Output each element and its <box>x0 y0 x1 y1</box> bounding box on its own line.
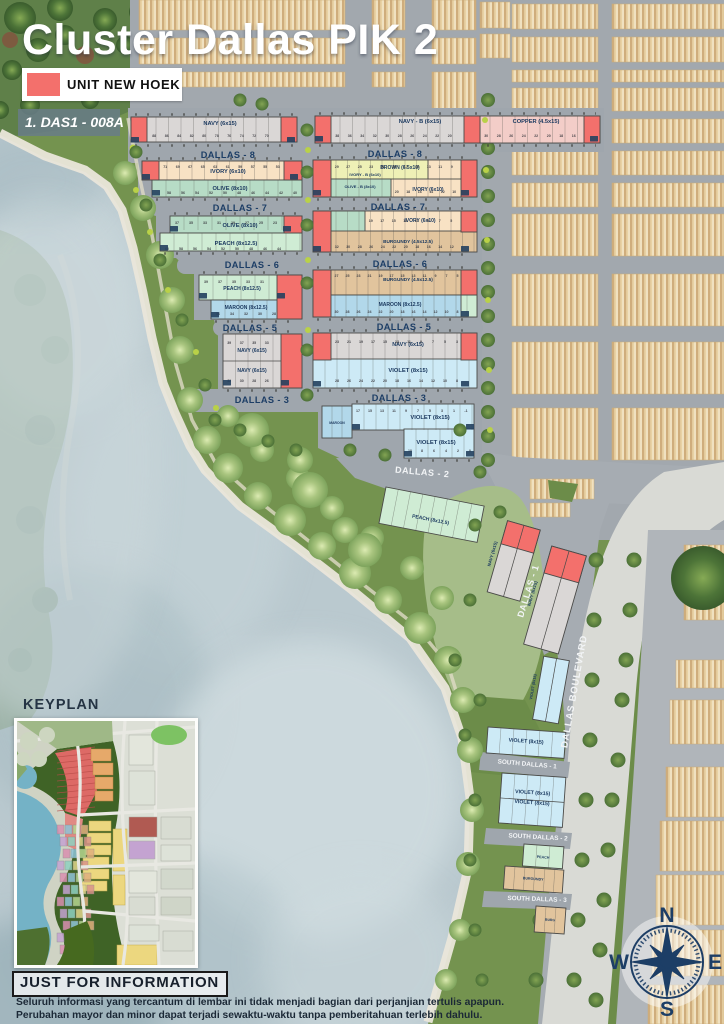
svg-text:58: 58 <box>179 247 183 251</box>
svg-text:30: 30 <box>346 245 350 249</box>
svg-text:16: 16 <box>418 190 422 194</box>
svg-text:35: 35 <box>232 280 236 284</box>
svg-text:DALLAS - 3: DALLAS - 3 <box>372 393 427 403</box>
svg-text:W: W <box>609 951 629 974</box>
svg-text:33: 33 <box>265 341 269 345</box>
svg-text:30: 30 <box>240 379 244 383</box>
svg-text:25: 25 <box>358 165 362 169</box>
svg-text:52: 52 <box>221 247 225 251</box>
svg-text:14: 14 <box>429 190 433 194</box>
svg-text:58: 58 <box>167 191 171 195</box>
svg-text:23: 23 <box>357 274 361 278</box>
svg-text:DALLAS - 8: DALLAS - 8 <box>368 149 423 159</box>
svg-text:39: 39 <box>204 280 208 284</box>
svg-text:32: 32 <box>244 312 248 316</box>
svg-text:37: 37 <box>218 280 222 284</box>
svg-text:67: 67 <box>188 165 192 169</box>
svg-text:6: 6 <box>433 449 435 453</box>
svg-text:4: 4 <box>445 449 447 453</box>
svg-text:7: 7 <box>417 409 419 413</box>
svg-text:31: 31 <box>260 280 264 284</box>
svg-text:52: 52 <box>209 191 213 195</box>
svg-text:17: 17 <box>404 165 408 169</box>
svg-text:28: 28 <box>335 379 339 383</box>
svg-text:20: 20 <box>547 134 551 138</box>
svg-text:46: 46 <box>251 191 255 195</box>
svg-text:18: 18 <box>395 379 399 383</box>
svg-text:S: S <box>660 998 674 1021</box>
svg-text:21: 21 <box>347 340 351 344</box>
svg-text:17: 17 <box>371 340 375 344</box>
svg-text:IVORY - B (6x10): IVORY - B (6x10) <box>349 172 381 177</box>
svg-text:11: 11 <box>415 219 419 223</box>
svg-text:40: 40 <box>293 191 297 195</box>
svg-text:30: 30 <box>385 134 389 138</box>
svg-text:15: 15 <box>368 409 372 413</box>
svg-text:NAVY (6x15): NAVY (6x15) <box>237 368 267 374</box>
svg-text:80: 80 <box>202 134 206 138</box>
svg-text:27: 27 <box>346 165 350 169</box>
svg-text:23: 23 <box>273 221 277 225</box>
svg-text:32: 32 <box>373 134 377 138</box>
svg-text:IVORY (6x10): IVORY (6x10) <box>210 169 246 175</box>
svg-text:12: 12 <box>441 190 445 194</box>
svg-text:34: 34 <box>230 312 234 316</box>
svg-text:-1: -1 <box>464 409 467 413</box>
svg-text:DALLAS - 5: DALLAS - 5 <box>223 323 278 333</box>
svg-text:86: 86 <box>165 134 169 138</box>
svg-text:17: 17 <box>390 274 394 278</box>
svg-text:44: 44 <box>277 247 281 251</box>
svg-text:44: 44 <box>265 191 269 195</box>
svg-text:33: 33 <box>246 280 250 284</box>
svg-text:15: 15 <box>401 274 405 278</box>
svg-text:84: 84 <box>177 134 181 138</box>
svg-text:30: 30 <box>335 310 339 314</box>
svg-text:29: 29 <box>231 221 235 225</box>
svg-text:5: 5 <box>457 274 459 278</box>
svg-text:19: 19 <box>369 219 373 223</box>
svg-text:10: 10 <box>445 310 449 314</box>
svg-text:72: 72 <box>252 134 256 138</box>
svg-text:15: 15 <box>415 165 419 169</box>
svg-text:COPPER (4.5x15): COPPER (4.5x15) <box>513 119 560 125</box>
svg-text:13: 13 <box>380 409 384 413</box>
svg-text:70: 70 <box>265 134 269 138</box>
svg-text:23: 23 <box>369 165 373 169</box>
svg-text:11: 11 <box>407 340 411 344</box>
svg-text:VIOLET (8x15): VIOLET (8x15) <box>388 368 427 374</box>
svg-text:E: E <box>708 951 722 974</box>
svg-text:8: 8 <box>421 449 423 453</box>
svg-text:8: 8 <box>457 310 459 314</box>
svg-text:18: 18 <box>415 245 419 249</box>
svg-text:26: 26 <box>347 379 351 383</box>
svg-text:20: 20 <box>448 134 452 138</box>
svg-text:9: 9 <box>427 219 429 223</box>
svg-text:26: 26 <box>265 379 269 383</box>
svg-text:26: 26 <box>369 245 373 249</box>
svg-text:BROWN (6.5x10): BROWN (6.5x10) <box>380 165 420 171</box>
svg-text:DALLAS - 8: DALLAS - 8 <box>201 150 256 160</box>
svg-text:NAVY - B (6x15): NAVY - B (6x15) <box>399 119 442 125</box>
svg-text:2: 2 <box>457 449 459 453</box>
svg-text:VIOLET (8x15): VIOLET (8x15) <box>416 440 455 446</box>
svg-text:11: 11 <box>423 274 427 278</box>
svg-text:7: 7 <box>446 274 448 278</box>
svg-text:9: 9 <box>451 165 453 169</box>
svg-text:12: 12 <box>434 310 438 314</box>
svg-text:17: 17 <box>380 219 384 223</box>
svg-text:28: 28 <box>252 379 256 383</box>
svg-text:34: 34 <box>360 134 364 138</box>
svg-text:33: 33 <box>203 221 207 225</box>
svg-text:65: 65 <box>201 165 205 169</box>
svg-text:16: 16 <box>427 245 431 249</box>
svg-text:DALLAS - 6: DALLAS - 6 <box>373 259 428 269</box>
svg-text:15: 15 <box>392 219 396 223</box>
svg-text:11: 11 <box>438 165 442 169</box>
svg-text:22: 22 <box>435 134 439 138</box>
svg-text:56: 56 <box>181 191 185 195</box>
svg-text:25: 25 <box>346 274 350 278</box>
svg-text:53: 53 <box>276 165 280 169</box>
svg-text:32: 32 <box>335 245 339 249</box>
svg-text:DALLAS - 7: DALLAS - 7 <box>371 202 426 212</box>
svg-text:25: 25 <box>259 221 263 225</box>
svg-text:5: 5 <box>429 409 431 413</box>
svg-text:13: 13 <box>395 340 399 344</box>
svg-text:82: 82 <box>190 134 194 138</box>
svg-text:20: 20 <box>395 190 399 194</box>
svg-text:13: 13 <box>403 219 407 223</box>
svg-text:VIOLET (8x15): VIOLET (8x15) <box>410 415 449 421</box>
svg-text:14: 14 <box>419 379 423 383</box>
svg-text:20: 20 <box>390 310 394 314</box>
svg-text:37: 37 <box>240 341 244 345</box>
svg-text:48: 48 <box>249 247 253 251</box>
svg-text:57: 57 <box>251 165 255 169</box>
svg-text:26: 26 <box>410 134 414 138</box>
svg-text:15: 15 <box>383 340 387 344</box>
svg-text:5: 5 <box>450 219 452 223</box>
svg-text:16: 16 <box>572 134 576 138</box>
svg-text:DALLAS - 5: DALLAS - 5 <box>377 322 432 332</box>
svg-text:38: 38 <box>335 134 339 138</box>
svg-text:BURGUNDY (4.5x12.5): BURGUNDY (4.5x12.5) <box>383 239 433 244</box>
svg-text:16: 16 <box>412 310 416 314</box>
svg-text:21: 21 <box>368 274 372 278</box>
svg-text:42: 42 <box>279 191 283 195</box>
svg-text:7: 7 <box>439 219 441 223</box>
svg-text:21: 21 <box>381 165 385 169</box>
svg-text:20: 20 <box>404 245 408 249</box>
svg-text:NAVY (6x15): NAVY (6x15) <box>203 121 236 127</box>
svg-text:27: 27 <box>335 274 339 278</box>
svg-text:48: 48 <box>237 191 241 195</box>
svg-text:63: 63 <box>213 165 217 169</box>
svg-text:74: 74 <box>240 134 244 138</box>
svg-text:OLIVE - B (8x10): OLIVE - B (8x10) <box>344 184 376 189</box>
svg-text:69: 69 <box>176 165 180 169</box>
svg-text:14: 14 <box>423 310 427 314</box>
svg-text:MAROON: MAROON <box>329 421 345 425</box>
svg-text:50: 50 <box>223 191 227 195</box>
svg-text:PEACH (8x12.5): PEACH (8x12.5) <box>223 286 261 292</box>
svg-text:26: 26 <box>357 310 361 314</box>
svg-text:54: 54 <box>207 247 211 251</box>
svg-text:13: 13 <box>412 274 416 278</box>
svg-text:18: 18 <box>406 190 410 194</box>
svg-text:50: 50 <box>235 247 239 251</box>
svg-text:14: 14 <box>438 245 442 249</box>
svg-text:OLIVE (8x10): OLIVE (8x10) <box>222 223 257 229</box>
svg-text:DALLAS - 3: DALLAS - 3 <box>235 395 290 405</box>
svg-text:BURG: BURG <box>545 918 556 923</box>
svg-text:54: 54 <box>195 191 199 195</box>
svg-text:DALLAS - 6: DALLAS - 6 <box>225 260 280 270</box>
svg-text:IVORY (6x10): IVORY (6x10) <box>404 218 435 224</box>
svg-text:78: 78 <box>215 134 219 138</box>
svg-text:31: 31 <box>217 221 221 225</box>
svg-text:22: 22 <box>371 379 375 383</box>
svg-text:24: 24 <box>368 310 372 314</box>
svg-text:N: N <box>659 904 674 927</box>
svg-text:24: 24 <box>359 379 363 383</box>
svg-text:9: 9 <box>420 340 422 344</box>
svg-text:OLIVE (8x10): OLIVE (8x10) <box>212 186 247 192</box>
svg-text:46: 46 <box>263 247 267 251</box>
svg-text:35: 35 <box>252 341 256 345</box>
svg-text:10: 10 <box>452 190 456 194</box>
svg-text:17: 17 <box>356 409 360 413</box>
svg-text:19: 19 <box>392 165 396 169</box>
svg-text:59: 59 <box>238 165 242 169</box>
svg-text:22: 22 <box>379 310 383 314</box>
svg-text:22: 22 <box>534 134 538 138</box>
svg-text:DALLAS - 7: DALLAS - 7 <box>213 203 268 213</box>
svg-text:10: 10 <box>443 379 447 383</box>
svg-text:12: 12 <box>450 245 454 249</box>
svg-text:19: 19 <box>359 340 363 344</box>
svg-text:MAROON (8x12.5): MAROON (8x12.5) <box>225 305 268 311</box>
svg-text:11: 11 <box>392 409 396 413</box>
svg-text:26: 26 <box>509 134 513 138</box>
svg-text:13: 13 <box>427 165 431 169</box>
svg-text:18: 18 <box>401 310 405 314</box>
svg-text:76: 76 <box>227 134 231 138</box>
svg-text:20: 20 <box>383 379 387 383</box>
svg-text:22: 22 <box>392 245 396 249</box>
svg-text:3: 3 <box>441 409 443 413</box>
svg-text:23: 23 <box>335 340 339 344</box>
svg-text:8: 8 <box>456 379 458 383</box>
svg-text:27: 27 <box>245 221 249 225</box>
svg-text:9: 9 <box>405 409 407 413</box>
svg-text:24: 24 <box>381 245 385 249</box>
svg-text:3: 3 <box>456 340 458 344</box>
svg-text:37: 37 <box>175 221 179 225</box>
svg-text:28: 28 <box>398 134 402 138</box>
svg-text:28: 28 <box>272 312 276 316</box>
svg-text:24: 24 <box>423 134 427 138</box>
svg-text:88: 88 <box>152 134 156 138</box>
svg-text:12: 12 <box>431 379 435 383</box>
svg-text:56: 56 <box>193 247 197 251</box>
svg-text:9: 9 <box>435 274 437 278</box>
svg-text:1: 1 <box>453 409 455 413</box>
svg-text:71: 71 <box>163 165 167 169</box>
svg-text:7: 7 <box>432 340 434 344</box>
svg-text:5: 5 <box>444 340 446 344</box>
svg-text:18: 18 <box>559 134 563 138</box>
svg-text:35: 35 <box>189 221 193 225</box>
svg-text:28: 28 <box>497 134 501 138</box>
svg-text:39: 39 <box>227 341 231 345</box>
svg-text:61: 61 <box>226 165 230 169</box>
svg-text:19: 19 <box>379 274 383 278</box>
svg-text:MAROON (8x12.5): MAROON (8x12.5) <box>379 302 422 308</box>
svg-text:30: 30 <box>484 134 488 138</box>
svg-text:29: 29 <box>335 165 339 169</box>
svg-text:NAVY (6x15): NAVY (6x15) <box>237 348 267 354</box>
svg-text:55: 55 <box>263 165 267 169</box>
svg-text:24: 24 <box>522 134 526 138</box>
svg-text:30: 30 <box>258 312 262 316</box>
svg-text:28: 28 <box>358 245 362 249</box>
svg-text:36: 36 <box>348 134 352 138</box>
svg-text:16: 16 <box>407 379 411 383</box>
svg-text:28: 28 <box>346 310 350 314</box>
